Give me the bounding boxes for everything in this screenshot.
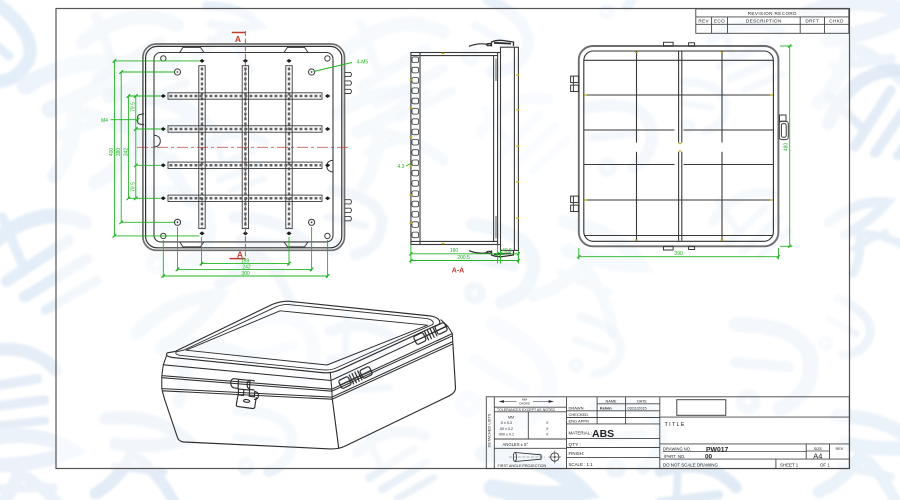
svg-text:4.3: 4.3	[398, 164, 405, 170]
svg-text:DATE: DATE	[637, 400, 647, 404]
svg-text:342: 342	[123, 148, 129, 157]
svg-text:REVISION RECORD: REVISION RECORD	[748, 11, 797, 16]
svg-text:DRAWING NO.: DRAWING NO.	[663, 447, 691, 452]
svg-text:CHECKED: CHECKED	[569, 412, 589, 417]
svg-text:CHORD: CHORD	[519, 402, 531, 406]
svg-text:79.5: 79.5	[131, 102, 137, 112]
svg-text:/PART NO.: /PART NO.	[664, 454, 685, 459]
svg-text:ABS: ABS	[592, 428, 614, 440]
svg-text:A: A	[235, 34, 241, 44]
svg-text:DESCRIPTION: DESCRIPTION	[746, 18, 782, 23]
svg-text:TOLERANCES EXCEPT AS NOTED: TOLERANCES EXCEPT AS NOTED	[497, 408, 556, 412]
svg-text:ECO: ECO	[714, 18, 725, 23]
svg-text:MM: MM	[508, 415, 514, 419]
svg-text:.000 ± 0.1: .000 ± 0.1	[498, 432, 514, 436]
svg-text:FINISH:: FINISH:	[569, 451, 585, 456]
svg-text:4-M5: 4-M5	[357, 60, 369, 66]
svg-text:A4: A4	[813, 451, 822, 460]
svg-text:A-A: A-A	[452, 268, 464, 275]
svg-text:DRAWN: DRAWN	[569, 405, 584, 410]
svg-text:160: 160	[450, 248, 459, 254]
svg-text:OF 1: OF 1	[820, 462, 830, 467]
svg-text:SHEET 1: SHEET 1	[780, 462, 799, 467]
svg-text:QT'Y :: QT'Y :	[569, 442, 581, 447]
svg-text:00: 00	[705, 454, 713, 461]
svg-text:NAME: NAME	[606, 400, 617, 404]
svg-text:79.5: 79.5	[131, 182, 137, 192]
svg-text:DRFT: DRFT	[805, 18, 819, 23]
svg-text:FIRST ANGLE PROJECTION: FIRST ANGLE PROJECTION	[498, 464, 547, 468]
svg-text:ANGLES ± 5°: ANGLES ± 5°	[503, 442, 529, 447]
svg-text:03/11/2015: 03/11/2015	[628, 405, 647, 410]
svg-text:DETACHED LISTS: DETACHED LISTS	[487, 413, 492, 447]
svg-text:SCALE : 1:1: SCALE : 1:1	[569, 462, 594, 467]
svg-text:SIZE: SIZE	[814, 447, 823, 451]
svg-text:CHKD: CHKD	[829, 18, 844, 23]
svg-text:480: 480	[784, 143, 790, 152]
svg-text:390: 390	[674, 251, 683, 257]
svg-text:DO NOT SCALE DRAWING: DO NOT SCALE DRAWING	[663, 462, 718, 467]
svg-text:.0 ± 0.3: .0 ± 0.3	[500, 421, 512, 425]
svg-text:.00 ± 0.2: .00 ± 0.2	[499, 427, 513, 431]
svg-text:242: 242	[242, 264, 251, 270]
svg-text:REV: REV	[835, 447, 843, 451]
svg-text:380: 380	[116, 148, 122, 157]
svg-text:TITLE: TITLE	[665, 422, 686, 428]
svg-text:40.5: 40.5	[502, 248, 512, 254]
svg-text:M4: M4	[101, 118, 108, 124]
svg-text:PW017: PW017	[706, 447, 729, 454]
svg-text:400: 400	[109, 148, 115, 157]
svg-text:300: 300	[241, 271, 250, 277]
svg-text:REV: REV	[698, 18, 709, 23]
svg-text:200.5: 200.5	[457, 255, 470, 261]
svg-text:ENG APPR: ENG APPR	[569, 419, 590, 424]
svg-text:MATERIAL :: MATERIAL :	[569, 431, 593, 436]
svg-text:Kelvin: Kelvin	[600, 405, 612, 410]
